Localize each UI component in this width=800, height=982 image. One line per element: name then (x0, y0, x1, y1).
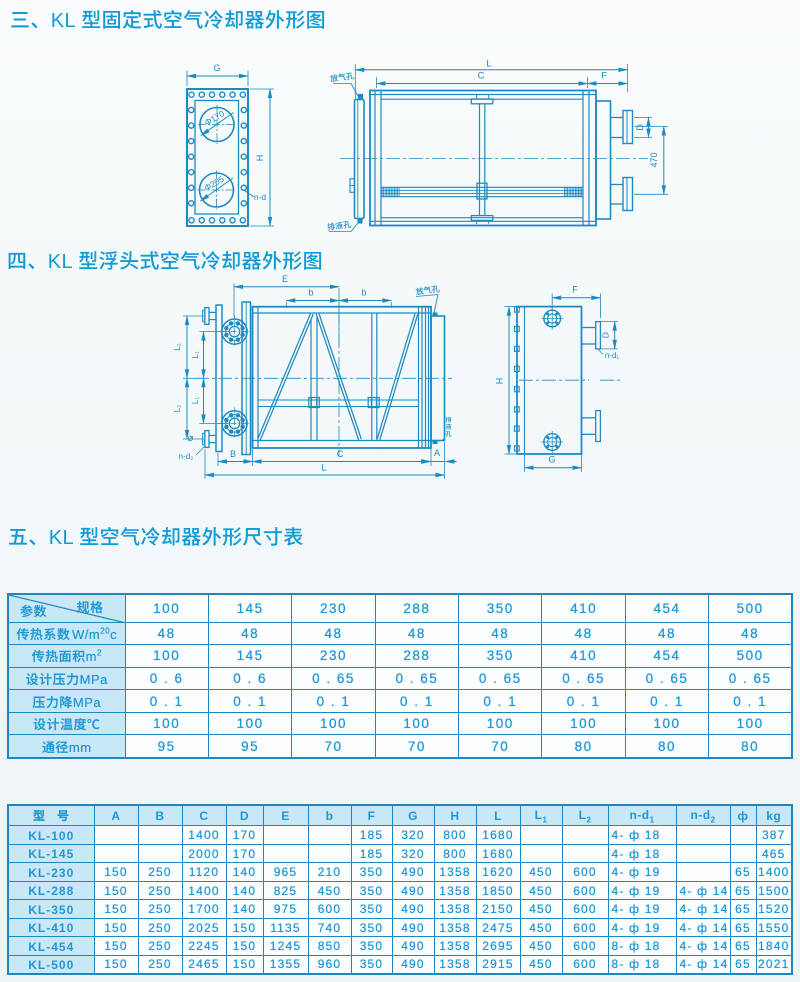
svg-text:G: G (213, 63, 220, 73)
svg-text:孔: 孔 (445, 429, 452, 438)
svg-text:C: C (478, 71, 485, 82)
svg-text:H: H (255, 155, 265, 162)
svg-text:L₂: L₂ (173, 343, 182, 351)
svg-text:A: A (434, 448, 440, 458)
svg-text:L: L (486, 58, 491, 69)
svg-text:F: F (601, 71, 607, 82)
svg-text:B: B (230, 449, 236, 459)
svg-text:L₂: L₂ (173, 405, 182, 413)
svg-text:470: 470 (649, 152, 659, 167)
svg-text:n-d₁: n-d₁ (605, 351, 620, 360)
svg-text:L: L (321, 463, 326, 474)
svg-text:H: H (495, 378, 505, 385)
svg-text:排液孔: 排液孔 (327, 219, 352, 233)
svg-text:L₁: L₁ (191, 397, 200, 404)
svg-text:n-d₂: n-d₂ (179, 452, 194, 461)
svg-text:F: F (572, 285, 578, 295)
svg-text:C: C (337, 449, 344, 459)
svg-text:b: b (361, 288, 366, 298)
svg-text:L₁: L₁ (191, 351, 200, 358)
svg-text:b: b (308, 288, 313, 298)
svg-text:D: D (601, 332, 611, 338)
svg-text:n-d: n-d (254, 192, 267, 202)
svg-text:G: G (548, 455, 555, 465)
svg-text:D: D (635, 124, 645, 131)
svg-text:放气孔: 放气孔 (330, 70, 355, 84)
svg-text:E: E (282, 274, 288, 284)
